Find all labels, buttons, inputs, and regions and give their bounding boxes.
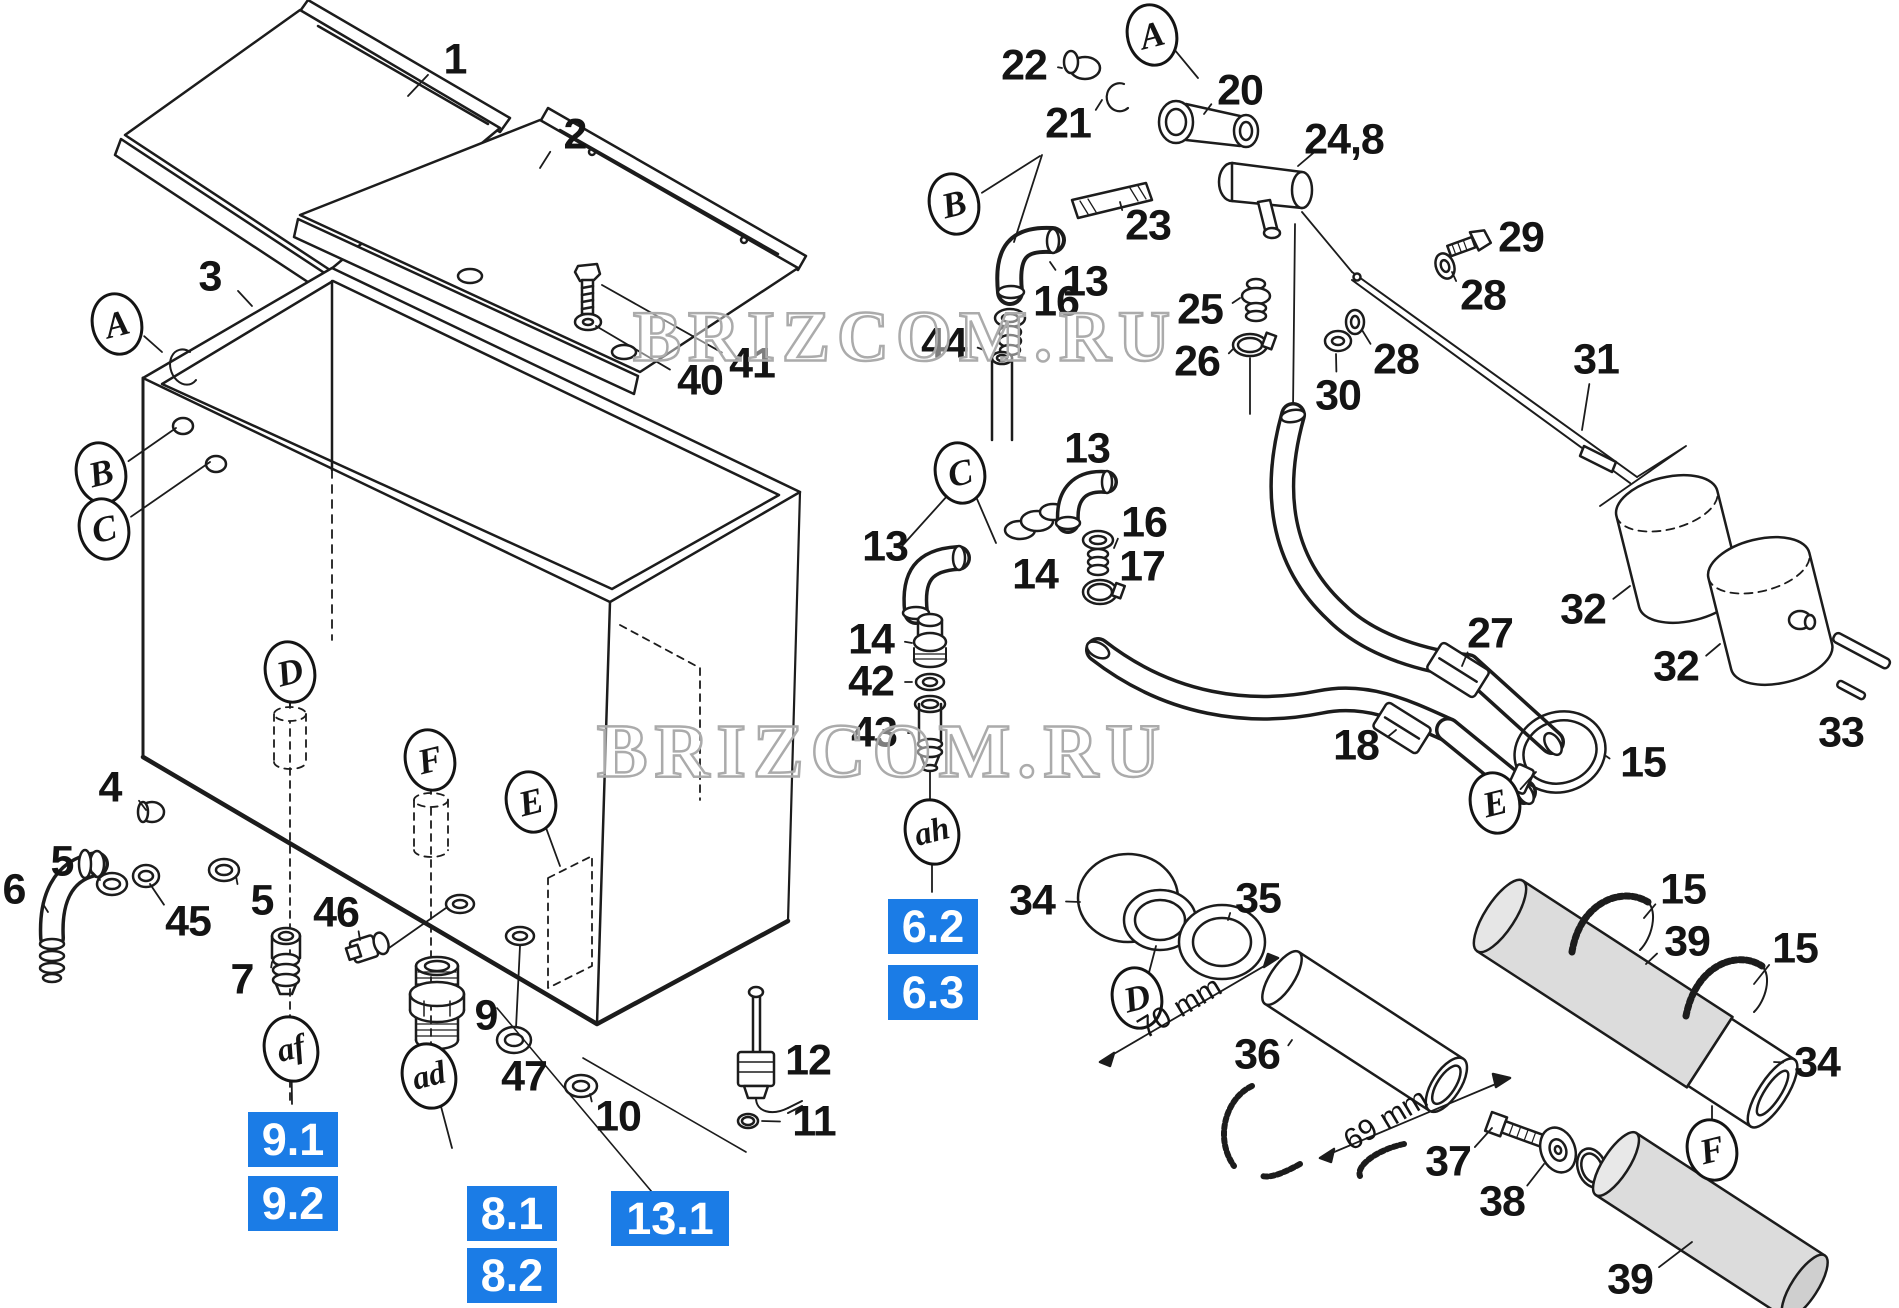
callout-C: C bbox=[71, 492, 137, 567]
part-label-25: 25 bbox=[1177, 289, 1223, 332]
diagram-overlay: BRIZCOM.RUBRIZCOM.RU12340414564554679471… bbox=[0, 0, 1899, 1308]
callout-ad: ad bbox=[394, 1036, 465, 1116]
part-label-30: 30 bbox=[1315, 375, 1361, 418]
part-label-38: 38 bbox=[1479, 1181, 1525, 1224]
part-label-47: 47 bbox=[501, 1056, 547, 1099]
part-label-16: 16 bbox=[1121, 502, 1167, 545]
part-label-11: 11 bbox=[792, 1101, 835, 1144]
callout-E: E bbox=[498, 765, 564, 840]
part-label-23: 23 bbox=[1125, 205, 1171, 248]
part-label-2: 2 bbox=[564, 114, 587, 157]
section-ref-6.3: 6.3 bbox=[888, 965, 978, 1020]
part-label-39: 39 bbox=[1664, 921, 1710, 964]
part-label-18: 18 bbox=[1333, 725, 1379, 768]
callout-ah: ah bbox=[897, 792, 968, 872]
section-ref-8.1: 8.1 bbox=[467, 1186, 557, 1241]
callout-F: F bbox=[397, 723, 463, 798]
part-label-14: 14 bbox=[1012, 554, 1058, 597]
part-label-26: 26 bbox=[1174, 341, 1220, 384]
part-label-15: 15 bbox=[1660, 869, 1706, 912]
part-label-34: 34 bbox=[1009, 880, 1055, 923]
part-label-32: 32 bbox=[1560, 589, 1606, 632]
dimension-69mm: 69 mm bbox=[1338, 1082, 1434, 1158]
section-ref-9.1: 9.1 bbox=[248, 1112, 338, 1167]
callout-B: B bbox=[921, 167, 987, 242]
part-label-34: 34 bbox=[1794, 1042, 1840, 1085]
section-ref-13.1: 13.1 bbox=[611, 1191, 729, 1246]
part-label-5: 5 bbox=[251, 880, 274, 923]
watermark-text: BRIZCOM.RU bbox=[597, 709, 1167, 796]
part-label-15: 15 bbox=[1772, 928, 1818, 971]
part-label-42: 42 bbox=[848, 661, 894, 704]
part-label-12: 12 bbox=[785, 1040, 831, 1083]
watermark-text: BRIZCOM.RU bbox=[633, 296, 1177, 379]
parts-diagram-page: BRIZCOM.RUBRIZCOM.RU12340414564554679471… bbox=[0, 0, 1899, 1308]
part-label-14: 14 bbox=[848, 619, 894, 662]
callout-C: C bbox=[927, 436, 993, 511]
part-label-7: 7 bbox=[231, 959, 254, 1002]
part-label-3: 3 bbox=[199, 256, 222, 299]
part-label-29: 29 bbox=[1498, 217, 1544, 260]
part-label-6: 6 bbox=[3, 869, 26, 912]
part-label-45: 45 bbox=[165, 901, 211, 944]
part-label-13: 13 bbox=[862, 526, 908, 569]
callout-E: E bbox=[1462, 766, 1528, 841]
callout-D: D bbox=[257, 635, 323, 710]
part-label-17: 17 bbox=[1119, 546, 1165, 589]
part-label-32: 32 bbox=[1653, 646, 1699, 689]
callout-F: F bbox=[1679, 1113, 1745, 1188]
part-label-4: 4 bbox=[99, 767, 122, 810]
part-label-21: 21 bbox=[1045, 103, 1091, 146]
part-label-27: 27 bbox=[1467, 613, 1513, 656]
callout-A: A bbox=[1119, 0, 1185, 72]
callout-A: A bbox=[84, 287, 150, 362]
part-label-39: 39 bbox=[1607, 1259, 1653, 1302]
callout-af: af bbox=[256, 1009, 327, 1089]
part-label-46: 46 bbox=[313, 892, 359, 935]
part-label-9: 9 bbox=[475, 995, 498, 1038]
section-ref-9.2: 9.2 bbox=[248, 1176, 338, 1231]
part-label-28: 28 bbox=[1460, 275, 1506, 318]
section-ref-8.2: 8.2 bbox=[467, 1248, 557, 1303]
part-label-15: 15 bbox=[1620, 742, 1666, 785]
part-label-31: 31 bbox=[1573, 339, 1619, 382]
section-ref-6.2: 6.2 bbox=[888, 899, 978, 954]
part-label-24-8: 24,8 bbox=[1304, 119, 1384, 162]
part-label-36: 36 bbox=[1234, 1034, 1280, 1077]
part-label-22: 22 bbox=[1001, 45, 1047, 88]
part-label-1: 1 bbox=[444, 39, 467, 82]
part-label-37: 37 bbox=[1425, 1141, 1471, 1184]
part-label-13: 13 bbox=[1064, 428, 1110, 471]
part-label-5: 5 bbox=[51, 841, 74, 884]
part-label-28: 28 bbox=[1373, 339, 1419, 382]
part-label-35: 35 bbox=[1235, 878, 1281, 921]
part-label-10: 10 bbox=[595, 1096, 641, 1139]
part-label-20: 20 bbox=[1217, 70, 1263, 113]
part-label-33: 33 bbox=[1818, 712, 1864, 755]
